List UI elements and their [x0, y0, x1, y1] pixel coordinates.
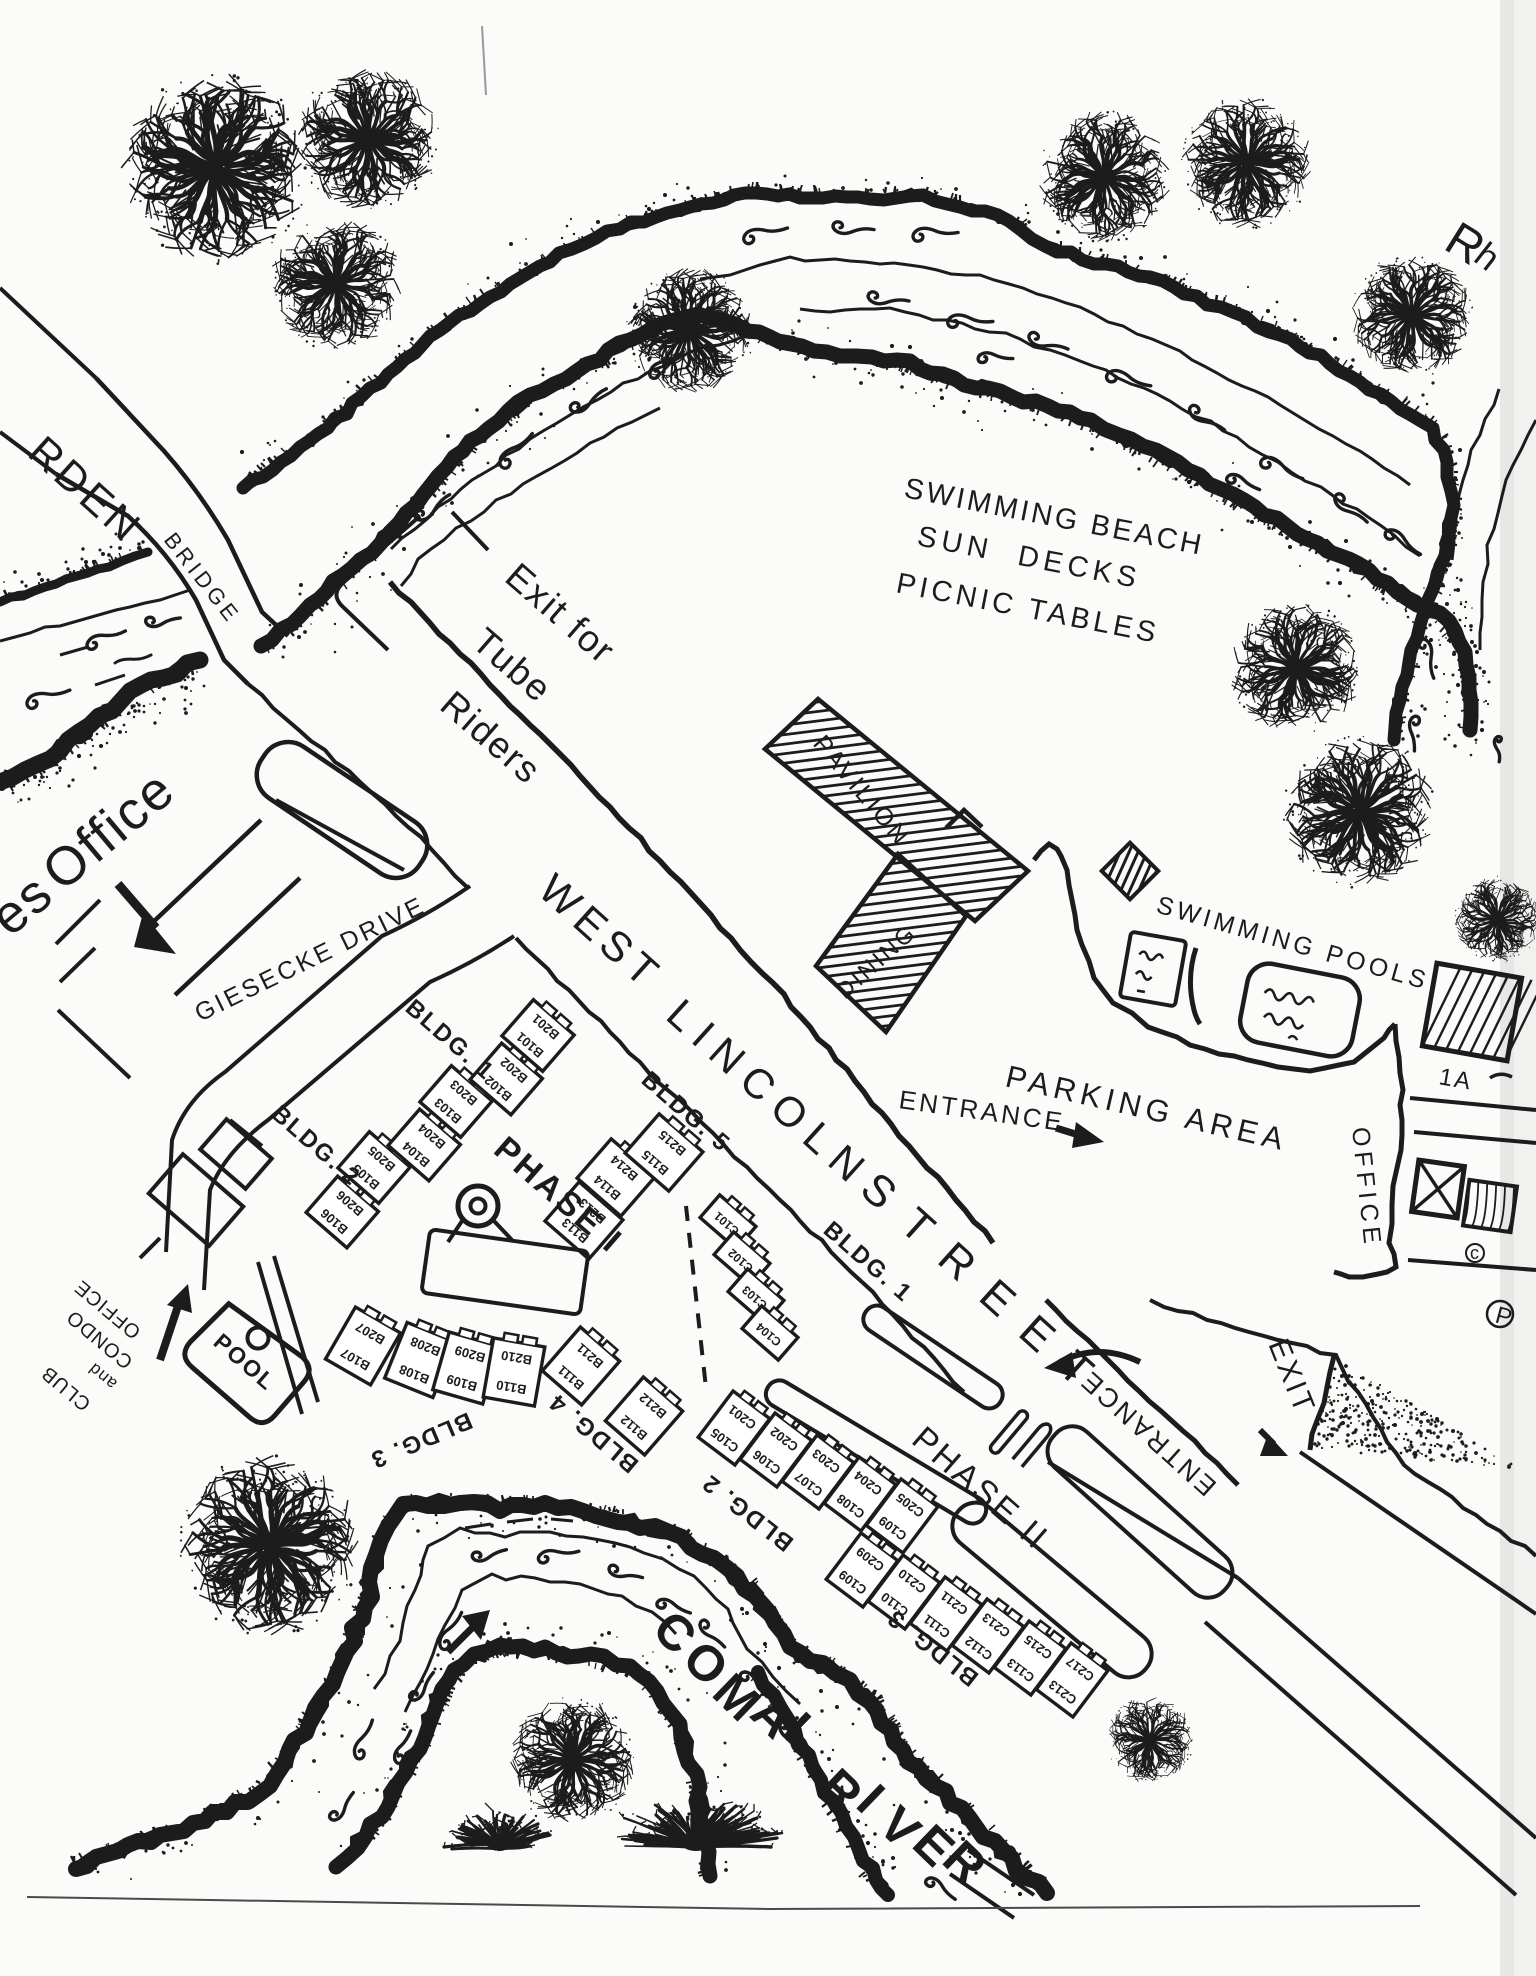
svg-text:1A: 1A: [1437, 1063, 1475, 1095]
svg-text:c: c: [1470, 1243, 1479, 1263]
